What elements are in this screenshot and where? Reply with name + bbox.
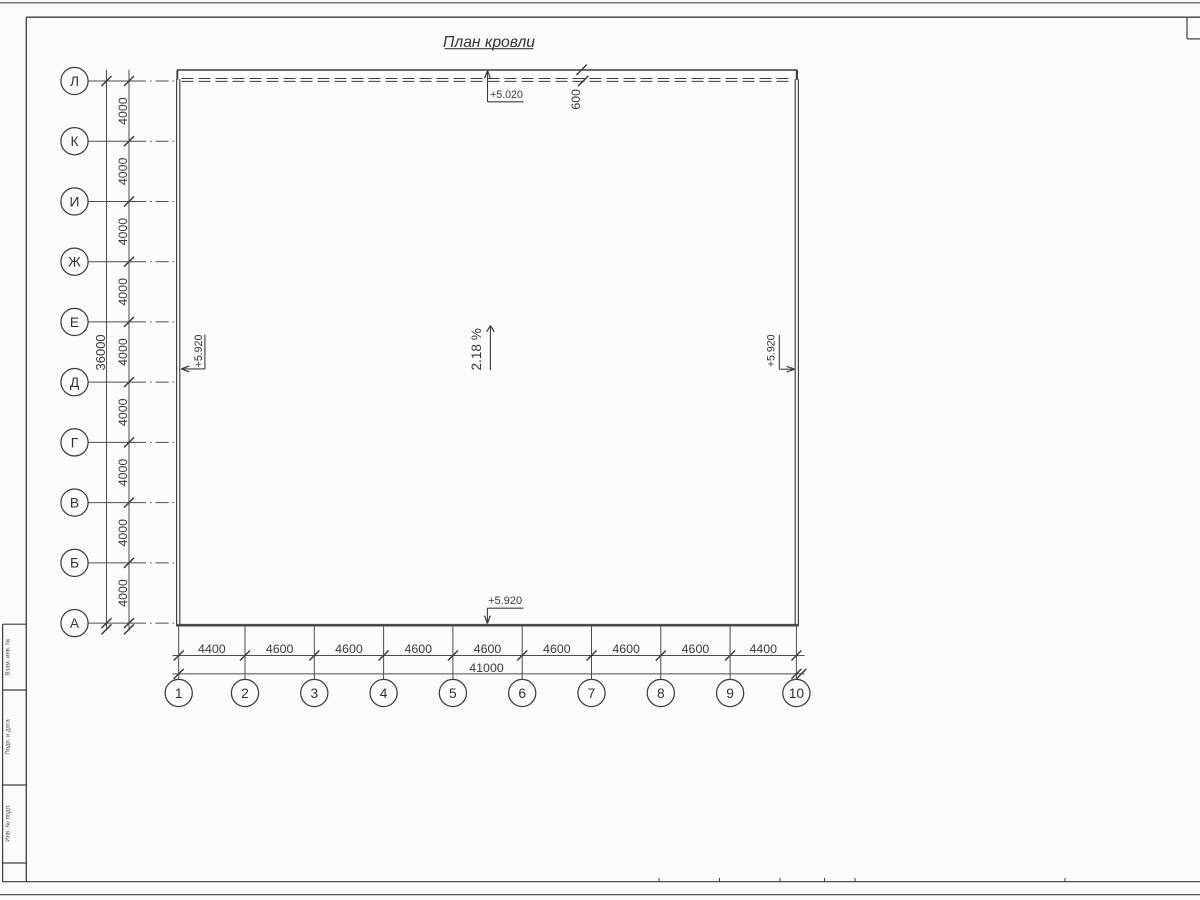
svg-text:4000: 4000 — [116, 278, 130, 306]
svg-text:И: И — [70, 194, 80, 209]
svg-text:А: А — [70, 616, 80, 631]
svg-text:600: 600 — [569, 89, 583, 110]
svg-text:Ж: Ж — [68, 255, 81, 270]
svg-text:4600: 4600 — [404, 642, 432, 656]
svg-text:4600: 4600 — [335, 642, 363, 656]
svg-text:+5.920: +5.920 — [488, 595, 522, 607]
svg-text:4400: 4400 — [749, 642, 777, 656]
svg-text:Л: Л — [70, 74, 79, 89]
svg-text:Д: Д — [70, 375, 80, 390]
svg-text:4600: 4600 — [266, 642, 294, 656]
svg-text:4000: 4000 — [116, 459, 130, 487]
svg-text:4600: 4600 — [543, 642, 571, 656]
svg-text:Б: Б — [70, 556, 79, 571]
svg-text:41000: 41000 — [469, 661, 504, 675]
svg-text:Взам. инв. №: Взам. инв. № — [5, 638, 12, 675]
svg-text:4000: 4000 — [116, 157, 130, 185]
svg-text:5: 5 — [449, 686, 457, 701]
svg-text:Инв. № подл.: Инв. № подл. — [5, 804, 12, 842]
svg-text:10: 10 — [789, 686, 805, 701]
svg-text:Е: Е — [70, 315, 79, 330]
svg-text:Г: Г — [71, 435, 79, 450]
svg-text:+5.920: +5.920 — [766, 334, 778, 367]
svg-text:К: К — [70, 134, 78, 149]
svg-text:6: 6 — [518, 686, 526, 701]
svg-text:4000: 4000 — [116, 97, 130, 125]
svg-text:4600: 4600 — [612, 642, 640, 656]
svg-text:2.18 %: 2.18 % — [469, 328, 484, 370]
svg-text:4: 4 — [380, 686, 388, 701]
svg-text:2: 2 — [241, 686, 249, 701]
svg-text:4000: 4000 — [116, 218, 130, 246]
svg-text:+5.020: +5.020 — [490, 89, 523, 101]
svg-text:8: 8 — [657, 686, 665, 701]
svg-text:4000: 4000 — [116, 398, 130, 426]
svg-text:3: 3 — [310, 686, 318, 701]
svg-text:9: 9 — [726, 686, 734, 701]
svg-text:4000: 4000 — [116, 579, 130, 607]
svg-text:7: 7 — [588, 686, 596, 701]
svg-text:Подп. и дата: Подп. и дата — [6, 719, 12, 755]
svg-text:4000: 4000 — [116, 519, 130, 547]
svg-text:4600: 4600 — [682, 642, 710, 656]
svg-text:В: В — [70, 496, 79, 511]
svg-text:1: 1 — [175, 686, 183, 701]
svg-text:4000: 4000 — [116, 338, 130, 366]
svg-text:4400: 4400 — [198, 642, 226, 656]
svg-text:36000: 36000 — [93, 334, 108, 370]
svg-text:4600: 4600 — [474, 642, 502, 656]
svg-text:+5.920: +5.920 — [193, 335, 205, 368]
